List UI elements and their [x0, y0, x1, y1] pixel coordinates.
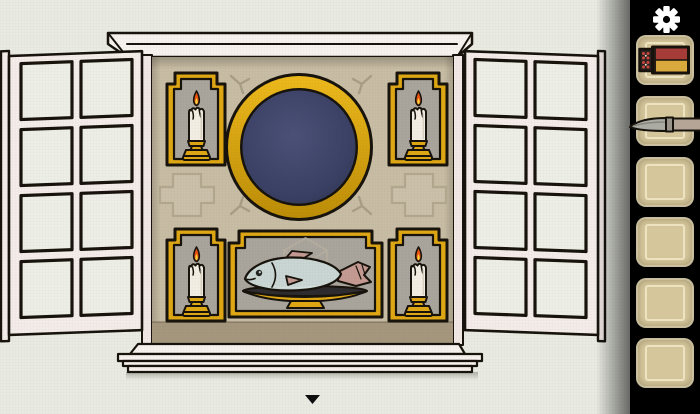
game-scene — [0, 0, 630, 414]
candle-bottom-right[interactable] — [389, 229, 447, 321]
game-screen — [0, 0, 700, 414]
candle-top-right[interactable] — [389, 73, 447, 165]
inventory-slot-4[interactable] — [636, 217, 694, 267]
gear-icon — [652, 5, 681, 34]
fish-eye — [256, 270, 262, 276]
knife-item[interactable] — [629, 112, 700, 138]
inventory-slot-1[interactable] — [636, 35, 694, 85]
window-lintel — [108, 33, 472, 57]
window-jamb-right — [453, 55, 463, 345]
matchbox-item[interactable] — [637, 40, 693, 80]
right-shutter[interactable] — [465, 46, 605, 341]
candle-top-left[interactable] — [167, 73, 225, 165]
fish-shrine[interactable] — [229, 231, 382, 317]
inventory-slot-3[interactable] — [636, 157, 694, 207]
alcove-floor — [152, 322, 453, 344]
left-shutter[interactable] — [1, 46, 142, 341]
inventory-slot-2[interactable] — [636, 96, 694, 146]
settings-gear-button[interactable] — [652, 5, 681, 34]
inventory-slot-5[interactable] — [636, 278, 694, 328]
sidebar-shadow — [596, 0, 630, 414]
window-sill — [118, 344, 482, 380]
inventory-sidebar — [630, 0, 700, 414]
round-mirror[interactable] — [225, 73, 373, 221]
inventory-slot-6[interactable] — [636, 338, 694, 388]
candle-bottom-left[interactable] — [167, 229, 225, 321]
window-jamb-left — [142, 55, 152, 345]
